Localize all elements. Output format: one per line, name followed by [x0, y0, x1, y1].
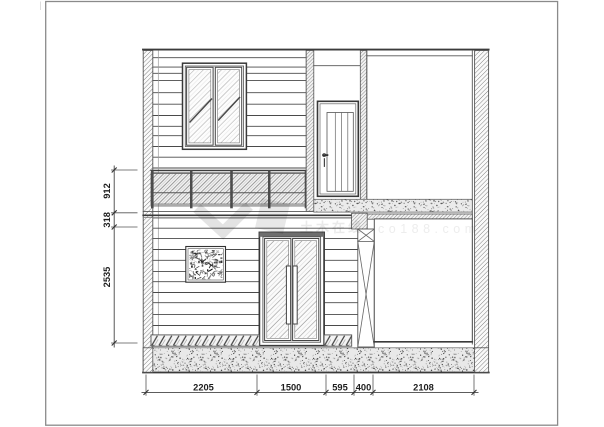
- svg-text:400: 400: [356, 382, 372, 392]
- svg-text:2205: 2205: [193, 382, 214, 392]
- svg-text:1500: 1500: [281, 382, 302, 392]
- svg-text:2535: 2535: [102, 267, 112, 288]
- svg-text:2108: 2108: [413, 382, 434, 392]
- svg-text:318: 318: [102, 212, 112, 228]
- svg-text:土木在线: 土木在线: [300, 220, 364, 235]
- svg-text:595: 595: [332, 382, 348, 392]
- svg-text:co188.com: co188.com: [378, 222, 480, 236]
- svg-text:912: 912: [102, 183, 112, 199]
